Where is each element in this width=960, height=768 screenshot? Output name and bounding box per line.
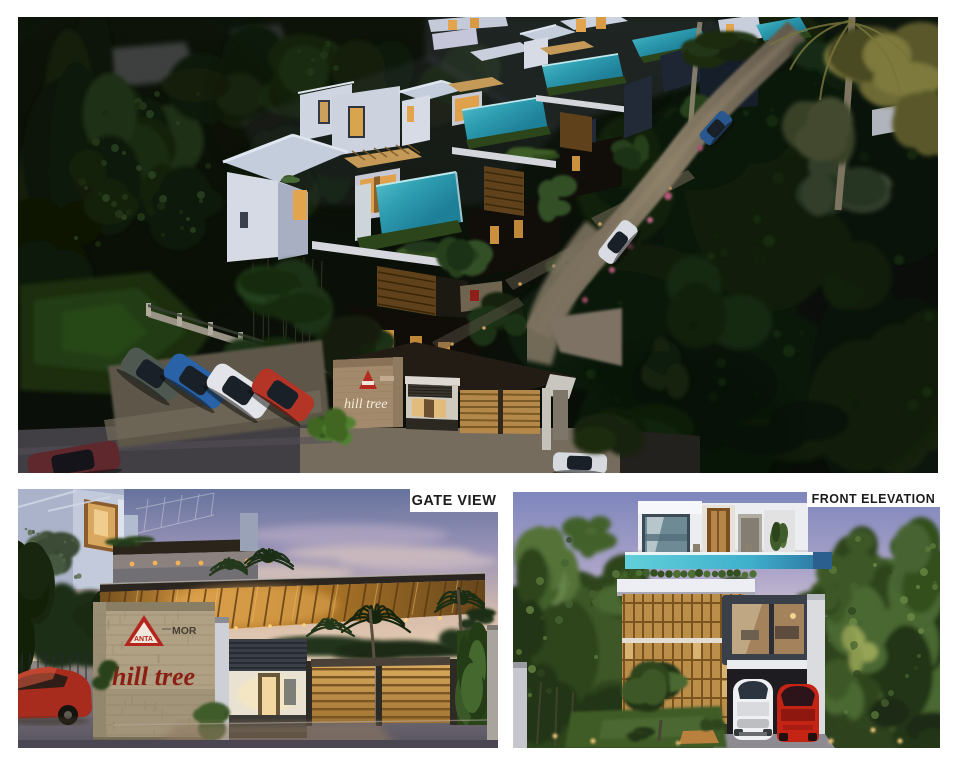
svg-text:ANTA: ANTA [134,636,153,643]
svg-text:hill tree: hill tree [344,397,387,412]
svg-text:MOR: MOR [172,625,197,637]
svg-text:hill tree: hill tree [112,662,195,691]
